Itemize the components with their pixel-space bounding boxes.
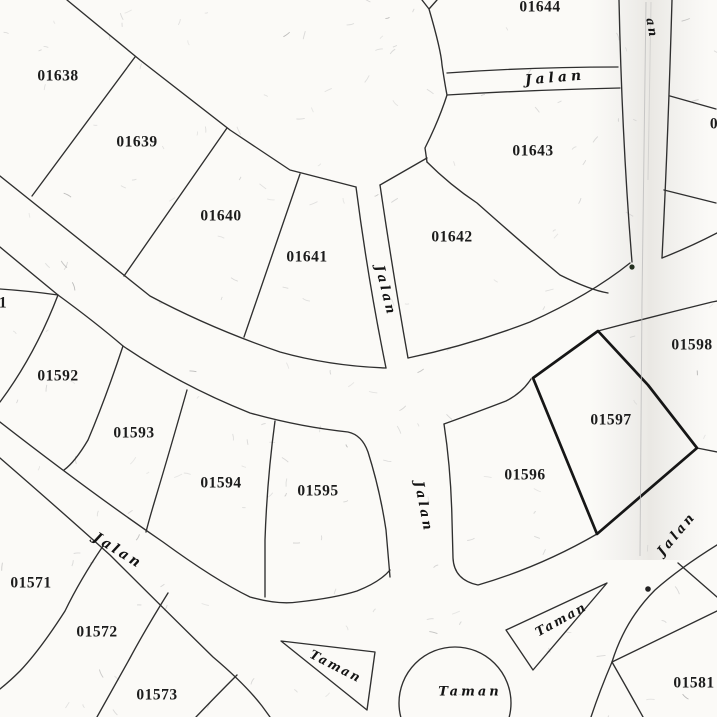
plot-label-partial: 0 — [710, 116, 717, 133]
plot-label: 01638 — [37, 68, 78, 85]
cadastral-map: 01638 01639 01640 01641 01642 01643 0164… — [0, 0, 717, 717]
map-canvas: 01638 01639 01640 01641 01642 01643 0164… — [0, 0, 717, 717]
plot-label: 01644 — [519, 0, 560, 16]
plot-label: 01594 — [200, 475, 241, 492]
plot-label: 01592 — [37, 368, 78, 385]
plot-label: 01642 — [431, 229, 472, 246]
plot-label: 01598 — [671, 337, 712, 354]
ink-blob — [629, 264, 634, 269]
plot-label: 01573 — [136, 687, 177, 704]
plot-label: 01596 — [504, 467, 545, 484]
plot-label: 01597 — [590, 412, 631, 429]
plot-label: 01641 — [286, 249, 327, 266]
ink-blob — [645, 586, 651, 592]
plot-label: 01571 — [10, 575, 51, 592]
plot-label: 01643 — [512, 143, 553, 160]
park-label-taman: Taman — [438, 685, 501, 700]
plot-label: 01593 — [113, 425, 154, 442]
plot-label: 01640 — [200, 208, 241, 225]
plot-label: 01572 — [76, 624, 117, 641]
plot-label: 01595 — [297, 483, 338, 500]
plot-label: 01639 — [116, 134, 157, 151]
plot-label-partial: 1 — [0, 295, 7, 312]
plot-label: 01581 — [673, 675, 714, 692]
